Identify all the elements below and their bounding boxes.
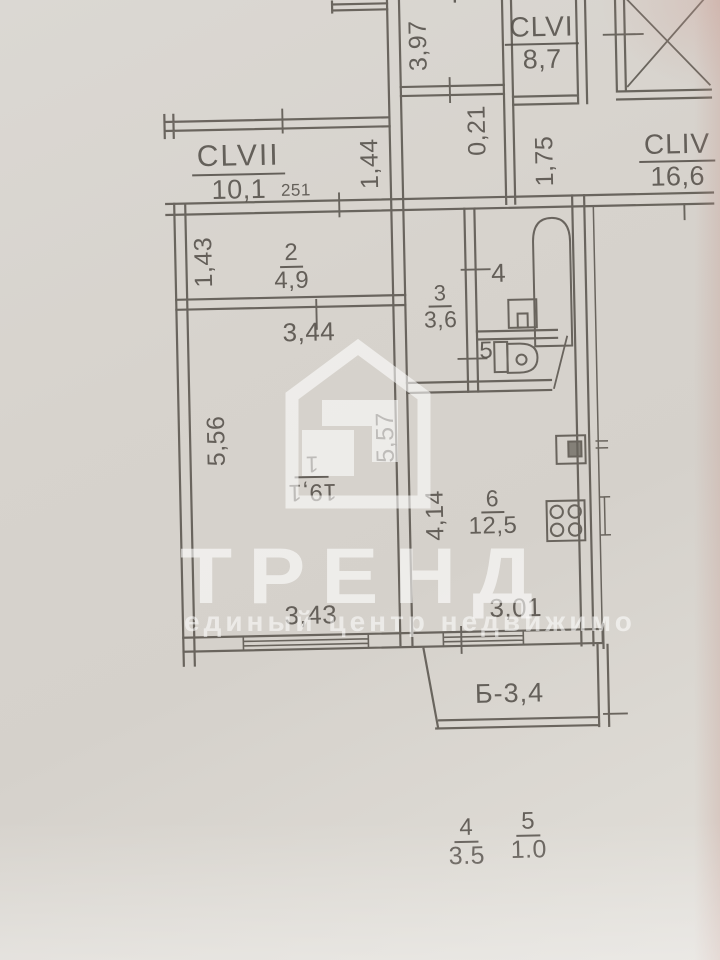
room-6-num: 6 — [481, 487, 505, 514]
corridor-clvii-label: CLVII 10,1 — [191, 140, 285, 204]
corridor-cliv-area: 16,6 — [650, 161, 705, 191]
room-2-label: 2 4,9 — [274, 241, 310, 295]
wall-neighbor — [593, 206, 602, 643]
legend-5-value: 1.0 — [510, 837, 547, 864]
room-2-num: 2 — [279, 241, 303, 269]
wall — [401, 85, 504, 96]
legend-item-5: 5 1.0 — [510, 809, 547, 864]
corridor-clvi-label: CLVI 8,7 — [504, 12, 579, 74]
room-3-area: 3,6 — [424, 307, 458, 332]
bathtub-icon — [533, 218, 573, 347]
dim-r1-height-left: 5,56 — [204, 415, 231, 466]
room-1-label: 1 19,1 — [287, 452, 337, 505]
legend-5-num: 5 — [516, 809, 540, 837]
corridor-clvi-area: 8,7 — [522, 44, 562, 73]
wall — [332, 0, 387, 12]
legend-4-value: 3.5 — [449, 843, 486, 870]
room-1-num: 1 — [305, 452, 319, 476]
dim-r1-height-right: 5,57 — [373, 412, 400, 463]
room-2-area: 4,9 — [274, 268, 309, 294]
kitchen-sink-icon — [556, 435, 608, 464]
wall — [164, 110, 389, 138]
dim-offset: 0,21 — [464, 105, 491, 156]
dim-r2-height: 1,43 — [191, 237, 218, 288]
watermark-tagline-text: единый центр недвижимо — [184, 606, 636, 638]
dim-r1-width-top: 3,44 — [282, 318, 335, 346]
balcony-label: Б-3,4 — [475, 679, 545, 708]
room-4-label: 4 — [491, 260, 507, 287]
room-3-label: 3 3,6 — [423, 282, 458, 333]
toilet-icon — [494, 341, 538, 373]
dim-corr-height: 1,75 — [532, 135, 559, 186]
corridor-cliv-name: CLIV — [639, 129, 716, 162]
dim-top-vert: 3,97 — [406, 20, 433, 71]
wall — [464, 209, 478, 392]
room-3-num: 3 — [428, 282, 451, 308]
dim-hall-height: 1,44 — [357, 138, 384, 189]
bath-sink-icon — [508, 299, 537, 328]
legend-item-4: 4 3.5 — [448, 815, 485, 870]
door-leaf — [553, 337, 568, 388]
wall — [176, 295, 405, 310]
corridor-clvii-name: CLVII — [191, 140, 284, 176]
floor-plan-photo: CLVII 10,1 251 CLVI 8,7 CLIV 16,6 4 3,97… — [0, 0, 720, 960]
legend-4-num: 4 — [454, 816, 478, 844]
vent-bracket — [600, 497, 610, 535]
edge-cut-label: 4 — [444, 0, 461, 8]
corridor-clvi-name: CLVI — [504, 12, 579, 45]
room-1-area: 19,1 — [288, 479, 337, 504]
room-5-label: 5 — [479, 339, 493, 364]
elevator-cross — [624, 0, 710, 86]
corridor-clvii-note: 251 — [281, 181, 311, 199]
corridor-cliv-label: CLIV 16,6 — [639, 129, 716, 191]
corridor-clvii-area: 10,1 — [211, 174, 266, 204]
floor-plan-drawing: CLVII 10,1 251 CLVI 8,7 CLIV 16,6 4 3,97… — [0, 0, 720, 960]
